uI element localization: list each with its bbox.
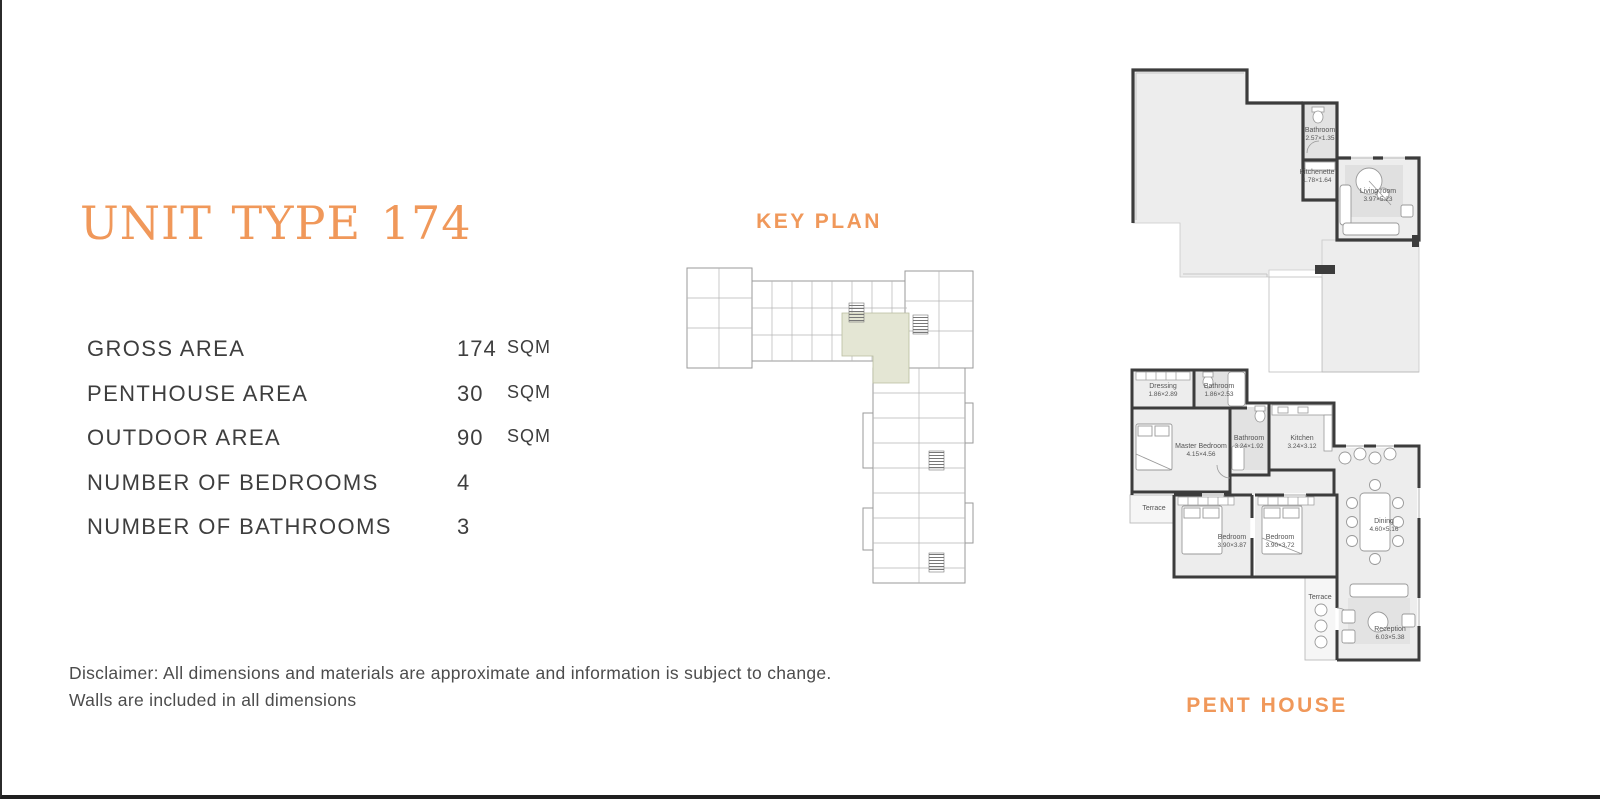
spec-value: 30 xyxy=(457,381,507,407)
toilet-icon xyxy=(1312,107,1324,123)
spec-label: NUMBER OF BATHROOMS xyxy=(87,514,457,540)
key-plan-title: KEY PLAN xyxy=(669,210,969,234)
pent-house-label: PENT HOUSE xyxy=(1102,694,1432,718)
disclaimer-line-2: Walls are included in all dimensions xyxy=(69,687,832,714)
spec-label: OUTDOOR AREA xyxy=(87,425,457,451)
sofa-icon xyxy=(1342,584,1415,644)
spec-label: PENTHOUSE AREA xyxy=(87,381,457,407)
spec-unit: SQM xyxy=(507,426,551,447)
penthouse-roof-plan: Bathroom 2.57×1.35 Kitchenette 1.78×1.64… xyxy=(1107,65,1422,378)
brochure-page: UNIT TYPE 174 GROSS AREA 174 SQM PENTHOU… xyxy=(0,0,1600,799)
penthouse-roof-plan-svg xyxy=(1107,65,1422,378)
spec-value: 3 xyxy=(457,514,507,540)
spec-label: NUMBER OF BEDROOMS xyxy=(87,470,457,496)
spec-row-bedrooms: NUMBER OF BEDROOMS 4 xyxy=(87,470,567,515)
spec-value: 4 xyxy=(457,470,507,496)
penthouse-main-plan: Dressing 1.86×2.89 Bathroom 1.86×2.53 Ma… xyxy=(1102,358,1422,663)
spec-value: 174 xyxy=(457,336,507,362)
page-title: UNIT TYPE 174 xyxy=(80,196,472,250)
spec-unit: SQM xyxy=(507,382,551,403)
spec-row-penthouse-area: PENTHOUSE AREA 30 SQM xyxy=(87,381,567,426)
unit-highlight xyxy=(842,313,909,383)
spec-list: GROSS AREA 174 SQM PENTHOUSE AREA 30 SQM… xyxy=(87,336,567,559)
spec-row-gross-area: GROSS AREA 174 SQM xyxy=(87,336,567,381)
spec-row-bathrooms: NUMBER OF BATHROOMS 3 xyxy=(87,514,567,559)
terrace-chairs-icon xyxy=(1315,604,1327,648)
spec-label: GROSS AREA xyxy=(87,336,457,362)
spec-row-outdoor-area: OUTDOOR AREA 90 SQM xyxy=(87,425,567,470)
key-plan-drawing xyxy=(677,253,977,593)
key-plan-svg xyxy=(677,253,977,593)
spec-unit: SQM xyxy=(507,337,551,358)
kitchen-counter-icon xyxy=(1305,162,1335,170)
disclaimer-line-1: Disclaimer: All dimensions and materials… xyxy=(69,660,832,687)
penthouse-main-plan-svg xyxy=(1102,358,1422,663)
spec-value: 90 xyxy=(457,425,507,451)
disclaimer-text: Disclaimer: All dimensions and materials… xyxy=(69,660,832,714)
